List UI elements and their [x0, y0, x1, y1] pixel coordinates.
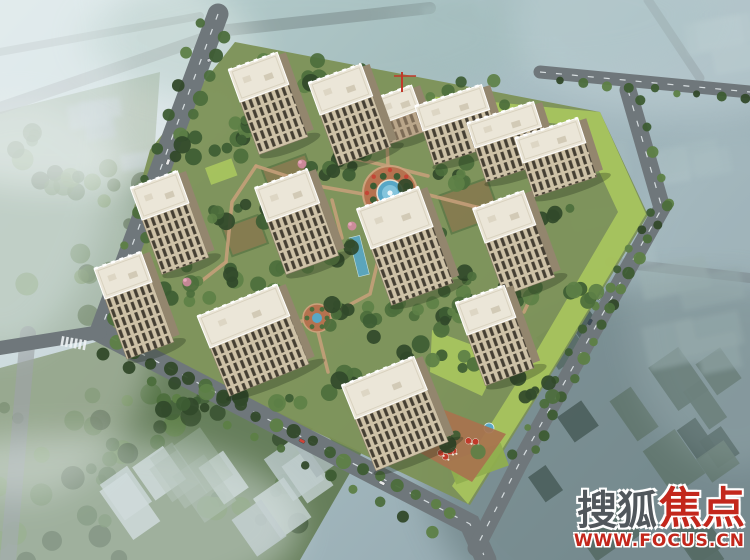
garden-tree	[447, 308, 455, 316]
watermark-brand-gray-text: 搜狐	[577, 491, 657, 531]
street-tree	[324, 447, 336, 459]
garden-tree	[310, 53, 325, 68]
garden-tree	[440, 316, 450, 326]
garden-tree	[425, 353, 439, 367]
street-tree	[662, 201, 673, 212]
street-tree	[204, 70, 216, 82]
garden-tree	[240, 199, 251, 210]
street-tree	[325, 470, 337, 482]
mini-plaza-shrub	[320, 307, 325, 312]
garden-tree	[367, 330, 381, 344]
street-tree	[147, 377, 157, 387]
fountain-shrub	[380, 173, 387, 180]
garden-tree	[207, 214, 217, 224]
garden-tree	[499, 99, 510, 110]
flower-bed	[372, 175, 376, 179]
street-tree	[624, 83, 634, 93]
street-tree	[646, 208, 655, 217]
flower-bed	[404, 175, 408, 179]
street-tree	[426, 526, 438, 538]
garden-tree	[588, 284, 604, 300]
street-tree	[673, 90, 680, 97]
street-tree	[193, 91, 208, 106]
garden-tree	[526, 389, 537, 400]
garden-tree	[155, 401, 172, 418]
street-tree	[642, 123, 651, 132]
street-tree	[613, 265, 621, 273]
street-tree	[657, 174, 666, 183]
scene-svg	[0, 0, 750, 560]
garden-tree	[323, 296, 340, 313]
patio-table	[452, 454, 454, 456]
street-tree	[188, 109, 199, 120]
street-tree	[578, 78, 588, 88]
street-tree	[604, 303, 615, 314]
garden-tree	[222, 143, 233, 154]
watermark-sohu-focus: 搜狐 焦点 WWW.FOCUS.CN	[574, 488, 745, 550]
street-tree	[616, 284, 627, 295]
garden-tree	[456, 169, 465, 178]
street-tree	[653, 220, 662, 229]
patio-table	[456, 453, 458, 455]
street-tree	[308, 436, 318, 446]
patio-umbrella	[465, 438, 471, 444]
garden-tree	[326, 164, 340, 178]
street-tree	[524, 424, 531, 431]
street-tree	[556, 77, 564, 85]
street-tree	[348, 485, 357, 494]
street-tree	[635, 95, 645, 105]
aerial-rendering-canvas: 搜狐 焦点 WWW.FOCUS.CN	[0, 0, 750, 560]
mini-plaza-shrub	[320, 324, 325, 329]
garden-tree	[285, 394, 294, 403]
fountain-shrub	[394, 173, 401, 180]
street-tree	[565, 348, 573, 356]
flowering-tree-highlight	[348, 222, 352, 226]
street-tree	[172, 79, 185, 92]
street-tree	[164, 362, 178, 376]
watermark-brand: 搜狐 焦点	[574, 488, 745, 531]
flower-bed	[365, 191, 369, 195]
street-tree	[200, 403, 209, 412]
garden-tree	[168, 377, 181, 390]
street-tree	[547, 410, 558, 421]
street-tree	[444, 507, 456, 519]
garden-tree	[565, 204, 574, 213]
street-tree	[270, 418, 284, 432]
garden-tree	[541, 375, 556, 390]
mini-plaza-shrub	[305, 316, 310, 321]
street-tree	[223, 421, 232, 430]
garden-tree	[471, 444, 486, 459]
street-tree	[357, 463, 369, 475]
street-tree	[391, 479, 404, 492]
garden-tree	[467, 272, 476, 281]
garden-tree	[487, 74, 500, 87]
garden-tree	[233, 149, 248, 164]
flowering-tree-highlight	[183, 278, 187, 282]
street-tree	[589, 338, 598, 347]
fountain-shrub	[370, 183, 377, 190]
watermark-url-text: WWW.FOCUS.CN	[574, 533, 745, 550]
street-tree	[287, 424, 301, 438]
street-tree	[647, 146, 659, 158]
garden-tree	[186, 289, 195, 298]
garden-tree	[174, 136, 191, 153]
fountain-jet	[387, 190, 392, 195]
patio-table	[447, 459, 449, 461]
street-tree	[180, 47, 192, 59]
street-tree	[375, 497, 386, 508]
mini-plaza-pool	[312, 313, 322, 323]
street-tree	[277, 444, 285, 452]
street-tree	[336, 454, 351, 469]
patio-table	[443, 455, 445, 457]
street-tree	[633, 252, 645, 264]
garden-tree	[363, 314, 378, 329]
street-tree	[577, 352, 590, 365]
street-tree	[123, 361, 136, 374]
street-tree	[431, 499, 441, 509]
street-tree	[570, 374, 579, 383]
patio-umbrella	[472, 439, 478, 445]
street-tree	[301, 461, 309, 469]
street-tree	[740, 94, 750, 104]
street-tree	[209, 49, 223, 63]
street-tree	[250, 412, 260, 422]
street-tree	[97, 348, 110, 361]
park-tree	[153, 420, 166, 433]
street-tree	[643, 234, 652, 243]
street-tree	[120, 241, 128, 249]
street-tree	[717, 91, 727, 101]
garden-tree	[456, 76, 467, 87]
street-tree	[163, 109, 175, 121]
street-tree	[602, 81, 612, 91]
street-tree	[218, 31, 231, 44]
garden-tree	[566, 282, 583, 299]
garden-tree	[294, 396, 308, 410]
garden-tree	[324, 319, 337, 332]
street-tree	[637, 225, 646, 234]
street-tree	[578, 324, 587, 333]
flowering-tree-highlight	[298, 160, 302, 164]
garden-tree	[342, 168, 355, 181]
watermark-brand-red-text: 焦点	[659, 488, 745, 531]
garden-tree	[176, 397, 190, 411]
street-tree	[196, 18, 205, 27]
street-tree	[182, 372, 195, 385]
flower-bed	[388, 168, 392, 172]
garden-tree	[546, 209, 560, 223]
street-tree	[507, 449, 517, 459]
street-tree	[625, 245, 633, 253]
garden-tree	[223, 267, 238, 282]
garden-tree	[202, 291, 216, 305]
street-tree	[693, 90, 700, 97]
patio-table	[470, 443, 472, 445]
garden-tree	[412, 335, 430, 353]
street-tree	[622, 267, 634, 279]
street-tree	[606, 283, 616, 293]
garden-tree	[209, 144, 221, 156]
garden-tree	[198, 384, 214, 400]
street-tree	[151, 143, 163, 155]
mini-plaza-shrub	[310, 324, 315, 329]
street-tree	[651, 84, 659, 92]
mini-plaza-shrub	[310, 307, 315, 312]
garden-tree	[457, 363, 467, 373]
garden-tree	[545, 389, 560, 404]
street-tree	[411, 489, 421, 499]
street-tree	[397, 511, 409, 523]
street-tree	[539, 430, 550, 441]
street-tree	[596, 320, 606, 330]
street-tree	[250, 433, 259, 442]
garden-tree	[237, 135, 247, 145]
garden-tree	[268, 394, 286, 412]
street-tree	[531, 445, 540, 454]
